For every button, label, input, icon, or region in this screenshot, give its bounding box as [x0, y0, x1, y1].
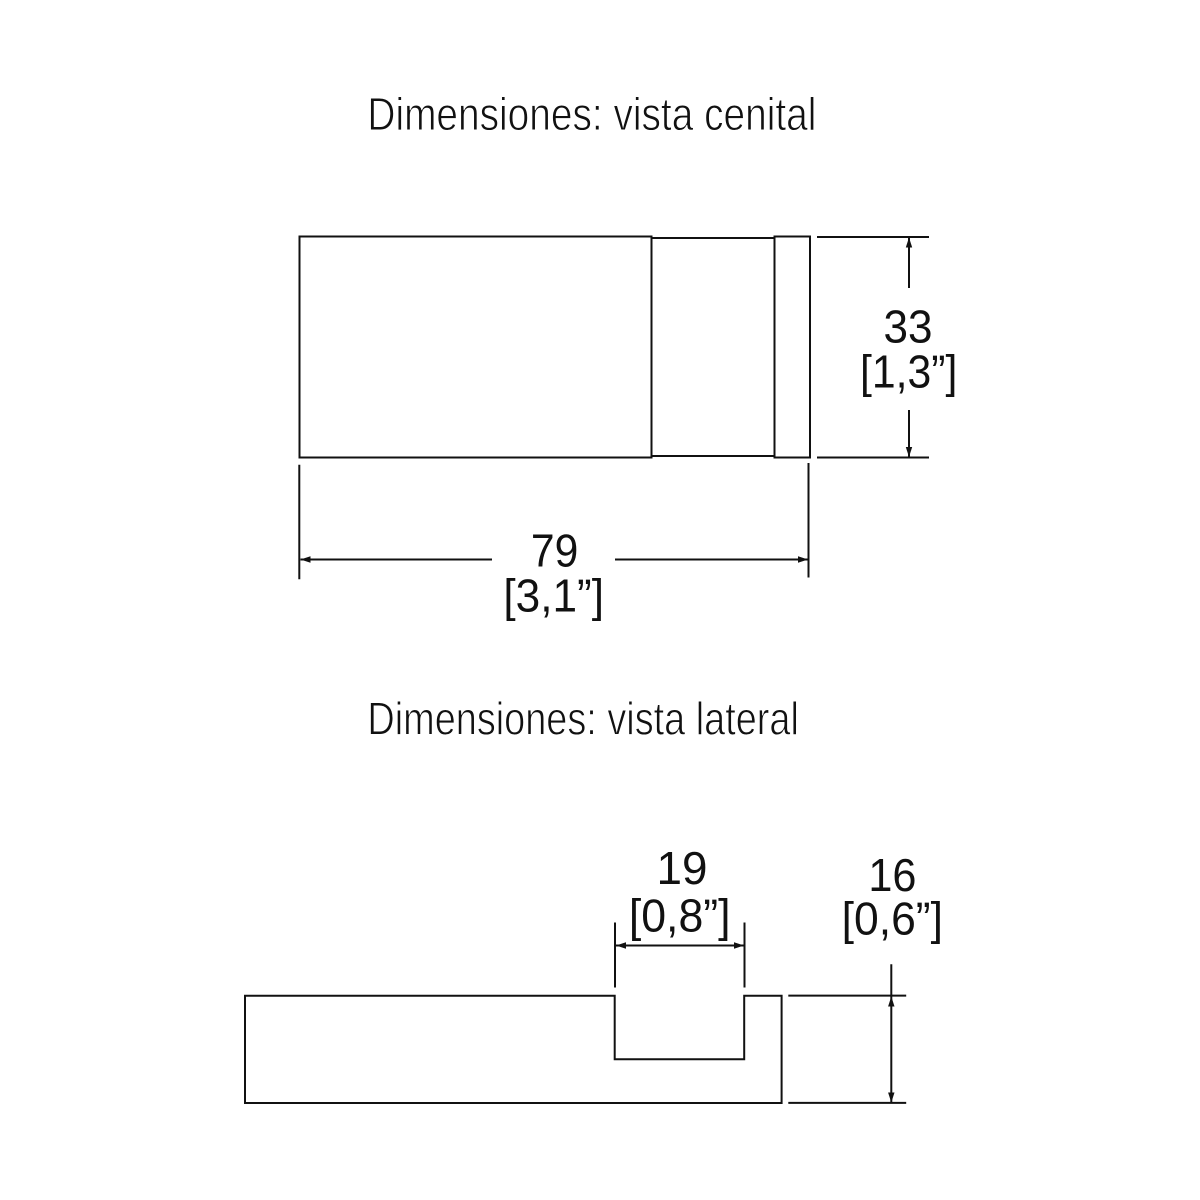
svg-text:Dimensiones: vista cenital: Dimensiones: vista cenital: [367, 88, 816, 140]
svg-text:[1,3”]: [1,3”]: [860, 346, 957, 398]
svg-text:19: 19: [657, 842, 708, 894]
svg-text:[0,6”]: [0,6”]: [842, 893, 943, 945]
svg-text:[0,8”]: [0,8”]: [629, 890, 731, 942]
svg-text:Dimensiones: vista lateral: Dimensiones: vista lateral: [367, 693, 799, 745]
svg-text:[3,1”]: [3,1”]: [503, 570, 604, 622]
